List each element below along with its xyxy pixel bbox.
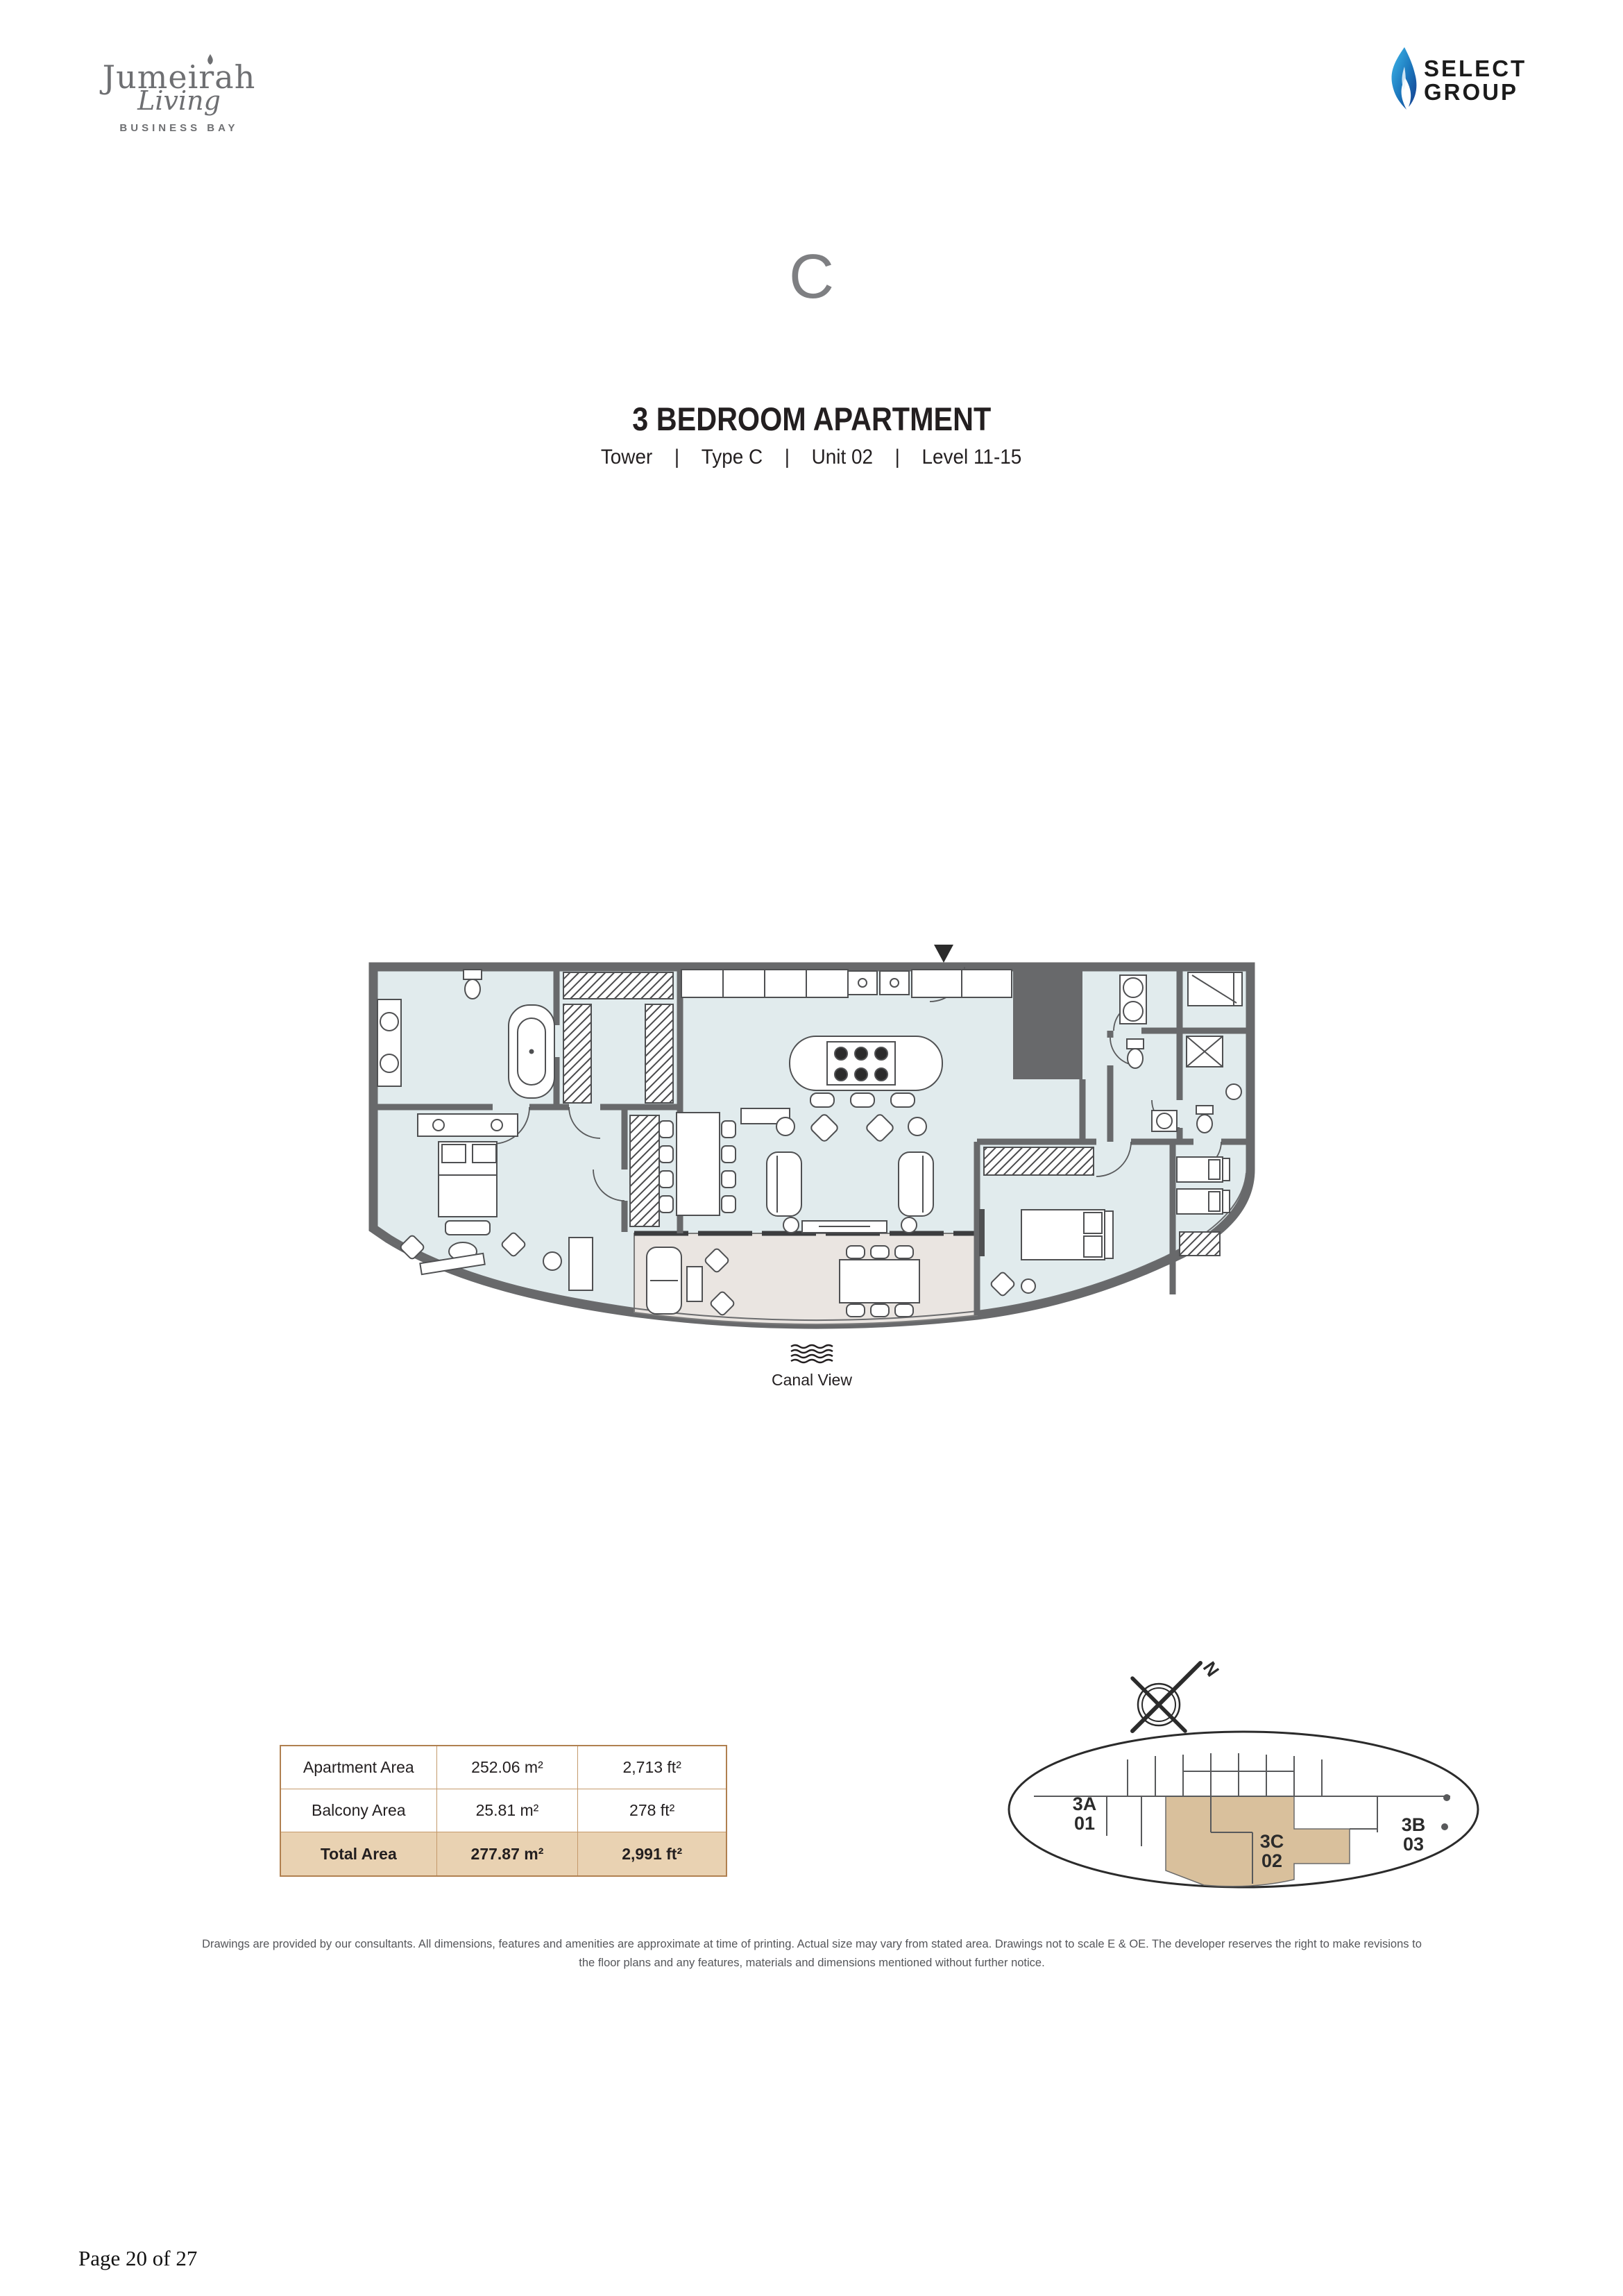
key-plan-unit-3b-line2: 03 <box>1403 1834 1424 1855</box>
key-plan-unit-3a-line2: 01 <box>1074 1813 1095 1834</box>
key-plan: 3A 01 3B 03 3C 02 <box>1003 1728 1485 1895</box>
page-title: 3 BEDROOM APARTMENT <box>0 400 1623 438</box>
key-plan-unit-3b-line1: 3B <box>1402 1814 1426 1835</box>
jumeirah-logo: Jumeirah Living BUSINESS BAY <box>82 61 276 134</box>
key-plan-drawing: 3A 01 3B 03 3C 02 <box>1003 1728 1485 1895</box>
key-plan-unit-3c-line2: 02 <box>1261 1850 1282 1871</box>
area-table: Apartment Area 252.06 m² 2,713 ft² Balco… <box>280 1745 727 1877</box>
page-title-text: 3 BEDROOM APARTMENT <box>632 400 991 438</box>
waves-icon <box>790 1344 834 1365</box>
area-label: Balcony Area <box>281 1789 437 1832</box>
brochure-page: Jumeirah Living BUSINESS BAY SELECT GROU… <box>0 0 1623 2296</box>
table-row-balcony-area: Balcony Area 25.81 m² 278 ft² <box>281 1789 726 1832</box>
jumeirah-location-label: BUSINESS BAY <box>82 122 276 134</box>
key-plan-unit-3a-line1: 3A <box>1073 1793 1097 1814</box>
area-m2: 277.87 m² <box>437 1832 579 1875</box>
key-plan-unit-3c-line1: 3C <box>1260 1831 1284 1852</box>
table-row-apartment-area: Apartment Area 252.06 m² 2,713 ft² <box>281 1746 726 1789</box>
select-line2: GROUP <box>1424 81 1527 104</box>
canal-view-label: Canal View <box>729 1371 895 1390</box>
area-m2: 252.06 m² <box>437 1746 579 1789</box>
table-row-total-area: Total Area 277.87 m² 2,991 ft² <box>281 1832 726 1875</box>
area-ft2: 278 ft² <box>578 1789 726 1832</box>
area-label: Total Area <box>281 1832 437 1875</box>
meta-unit: Unit 02 <box>812 446 873 469</box>
meta-type: Type C <box>702 446 763 469</box>
floor-plan <box>361 934 1263 1336</box>
compass-north-label: N <box>1199 1657 1223 1680</box>
meta-separator: | <box>674 446 679 469</box>
page-number: Page 20 of 27 <box>78 2246 197 2271</box>
jumeirah-flame-icon <box>205 54 215 65</box>
canal-view: Canal View <box>729 1344 895 1390</box>
meta-separator: | <box>895 446 900 469</box>
floor-plan-drawing <box>361 934 1263 1336</box>
area-ft2: 2,713 ft² <box>578 1746 726 1789</box>
area-label: Apartment Area <box>281 1746 437 1789</box>
select-flame-icon <box>1388 46 1418 115</box>
meta-separator: | <box>785 446 790 469</box>
unit-type-letter: C <box>0 242 1623 313</box>
jumeirah-wordmark: Jumeirah <box>82 61 276 93</box>
select-group-name: SELECT GROUP <box>1424 57 1527 104</box>
area-ft2: 2,991 ft² <box>578 1832 726 1875</box>
select-line1: SELECT <box>1424 57 1527 81</box>
area-m2: 25.81 m² <box>437 1789 579 1832</box>
select-group-logo: SELECT GROUP <box>1388 46 1527 115</box>
meta-level: Level 11-15 <box>922 446 1022 469</box>
disclaimer-text: Drawings are provided by our consultants… <box>201 1935 1422 1973</box>
meta-tower: Tower <box>601 446 652 469</box>
apartment-meta: Tower | Type C | Unit 02 | Level 11-15 <box>0 446 1623 469</box>
